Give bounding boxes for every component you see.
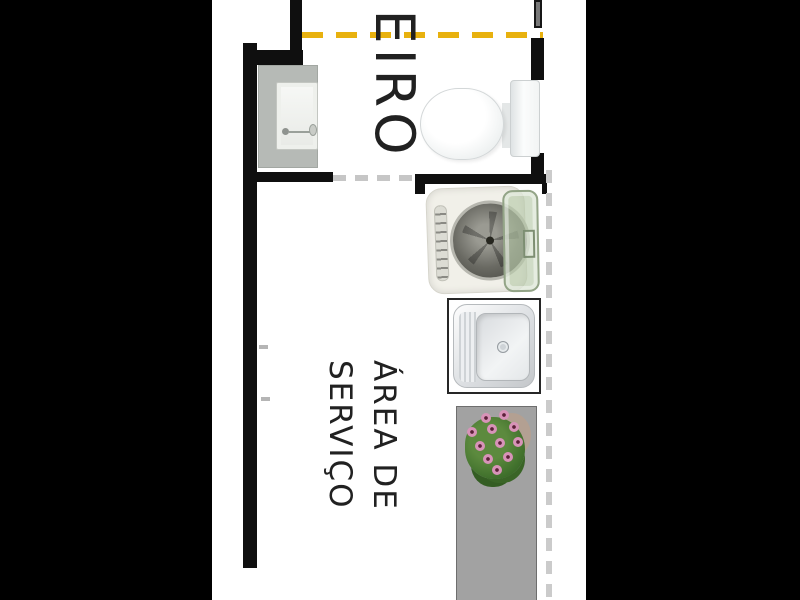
floor-plan-screenshot: { "document": { "type": "apartment-floor… xyxy=(0,0,800,600)
laundry-tank-drain xyxy=(497,341,509,353)
washing-machine-open-lid xyxy=(502,190,540,293)
wall-divider-left xyxy=(245,172,333,182)
flower xyxy=(467,427,477,437)
laundry-tank xyxy=(447,298,541,394)
wall-tick-mark xyxy=(261,397,270,401)
gray-dashed-open-side-line xyxy=(546,170,552,600)
flower xyxy=(495,438,505,448)
flower xyxy=(475,441,485,451)
service-area-label-line2: SERVIÇO xyxy=(322,360,358,510)
floor-mat xyxy=(456,406,537,600)
flower xyxy=(513,437,523,447)
washing-machine xyxy=(425,184,542,296)
basin-drain xyxy=(309,124,317,136)
flower xyxy=(487,424,497,434)
washing-machine-control-panel xyxy=(434,205,450,281)
wall-tick-mark xyxy=(259,345,268,349)
wall-top-stub xyxy=(290,0,302,52)
toilet-bowl xyxy=(420,88,504,160)
vanity-sink xyxy=(258,65,318,168)
wall-bathroom-top xyxy=(245,50,303,65)
washing-machine-lid-handle xyxy=(523,230,535,258)
gray-dashed-divider-line xyxy=(333,175,421,181)
wall-left xyxy=(243,43,257,568)
floor-plan-sheet: HEIRO ÁREA DESERVIÇO xyxy=(212,0,586,600)
bathroom-room-label: HEIRO xyxy=(362,0,426,160)
laundry-tank-washboard xyxy=(459,312,476,382)
door-leaf-top-right xyxy=(534,0,542,28)
flower xyxy=(509,422,519,432)
faucet-icon xyxy=(282,128,289,135)
flower xyxy=(483,454,493,464)
vanity-basin xyxy=(276,82,318,150)
toilet-tank xyxy=(510,80,540,157)
wall-bathroom-right-upper xyxy=(531,38,544,80)
potted-plant xyxy=(463,411,533,487)
service-area-label-line1: ÁREA DE xyxy=(366,360,402,511)
flower xyxy=(492,465,502,475)
flower xyxy=(503,452,513,462)
faucet-spout xyxy=(289,131,311,133)
laundry-tank-basin xyxy=(476,313,530,381)
flower xyxy=(499,410,509,420)
laundry-tank-sink xyxy=(453,304,535,388)
service-area-room-label: ÁREA DESERVIÇO xyxy=(310,360,406,530)
flower xyxy=(481,413,491,423)
